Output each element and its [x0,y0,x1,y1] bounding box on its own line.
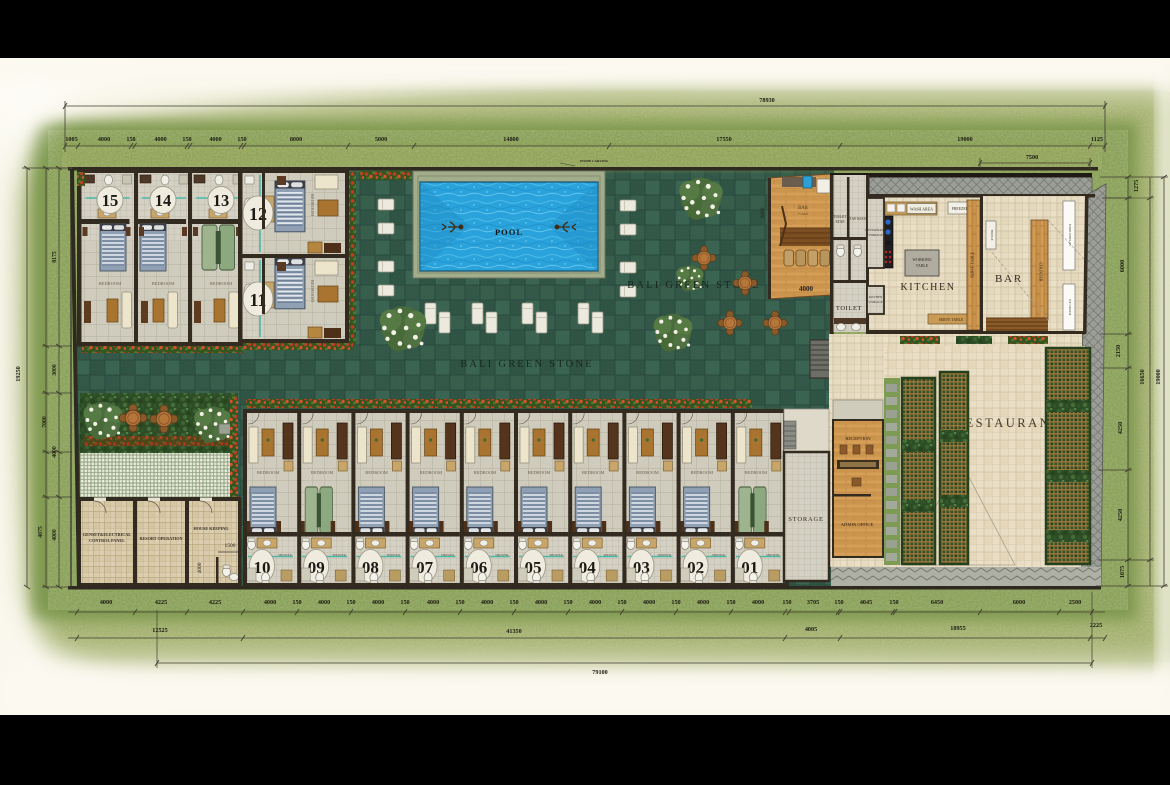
svg-text:1075: 1075 [1119,566,1126,578]
svg-text:GENSET&ELECTRICAL: GENSET&ELECTRICAL [83,532,131,537]
svg-text:12525: 12525 [152,627,167,634]
svg-text:COUNTER: COUNTER [1039,263,1044,282]
svg-text:8175: 8175 [52,251,58,263]
svg-text:4000: 4000 [697,599,709,606]
svg-text:SHOWER: SHOWER [549,553,563,557]
svg-text:4225: 4225 [155,599,167,606]
svg-text:1275: 1275 [1133,180,1140,192]
svg-text:4000: 4000 [799,285,814,293]
svg-text:4000: 4000 [643,599,655,606]
svg-text:BAR: BAR [798,206,809,211]
svg-text:SHOWER: SHOWER [603,553,617,557]
svg-text:6000: 6000 [1119,260,1126,272]
svg-text:4000: 4000 [318,599,330,606]
svg-text:4000: 4000 [154,136,166,143]
svg-text:150: 150 [782,599,791,606]
svg-text:4000: 4000 [427,599,439,606]
svg-text:150: 150 [455,599,464,606]
svg-text:TOILET: TOILET [833,215,847,219]
svg-text:BEDROOM: BEDROOM [745,470,768,475]
svg-text:KITCHEN: KITCHEN [869,295,883,299]
svg-text:RESORT OPERATION: RESORT OPERATION [139,536,182,541]
svg-text:4250: 4250 [1117,509,1124,521]
svg-text:14: 14 [155,191,172,210]
svg-text:WORKING: WORKING [912,257,931,262]
svg-text:4000: 4000 [372,599,384,606]
svg-text:150: 150 [182,136,191,143]
svg-text:TOILET: TOILET [836,305,862,312]
svg-text:CONTROL PANEL: CONTROL PANEL [89,538,125,543]
svg-text:4000: 4000 [535,599,547,606]
svg-text:1005: 1005 [65,136,77,143]
svg-text:BEDROOM: BEDROOM [636,470,659,475]
svg-text:STONE CARVING: STONE CARVING [580,159,609,163]
svg-text:150: 150 [237,136,246,143]
svg-text:4000: 4000 [752,599,764,606]
svg-text:STORAGE: STORAGE [868,300,882,304]
svg-text:150: 150 [400,599,409,606]
svg-text:4000: 4000 [481,599,493,606]
svg-text:150: 150 [617,599,626,606]
svg-text:WASH AREA: WASH AREA [910,207,933,212]
svg-text:3705: 3705 [807,599,819,606]
svg-text:+/-0.00: +/-0.00 [798,212,808,216]
svg-text:4000: 4000 [100,599,112,606]
svg-text:ADMIN OFFICE: ADMIN OFFICE [841,522,874,527]
svg-text:SHOWER: SHOWER [658,553,672,557]
svg-text:FREEZER: FREEZER [952,207,969,211]
svg-text:13: 13 [213,191,230,210]
svg-text:8000: 8000 [290,136,302,143]
svg-text:16650: 16650 [1139,369,1146,384]
svg-text:150: 150 [889,599,898,606]
svg-text:TABLE: TABLE [916,263,929,268]
svg-text:BEDROOM: BEDROOM [99,281,122,286]
svg-text:POOL: POOL [495,227,523,237]
svg-text:KITCHEN: KITCHEN [900,282,955,293]
svg-text:BAR: BAR [995,273,1023,285]
svg-text:SHOWER: SHOWER [712,553,726,557]
svg-text:BEDROOM: BEDROOM [690,470,713,475]
svg-text:BEDROOM: BEDROOM [365,470,388,475]
svg-text:150: 150 [126,136,135,143]
svg-text:4000: 4000 [589,599,601,606]
svg-text:5000: 5000 [375,136,387,143]
svg-text:6000: 6000 [1013,599,1025,606]
svg-text:7000: 7000 [42,416,48,428]
svg-text:19000: 19000 [957,136,972,143]
svg-text:SHOWER: SHOWER [495,553,509,557]
svg-text:14800: 14800 [503,136,518,143]
svg-text:BEDROOM: BEDROOM [310,194,315,217]
svg-text:2500: 2500 [1069,599,1081,606]
svg-text:4000: 4000 [264,599,276,606]
svg-text:18955: 18955 [950,625,965,632]
svg-text:BEDROOM: BEDROOM [474,470,497,475]
svg-text:RESTAURANT: RESTAURANT [865,228,885,232]
svg-text:150: 150 [726,599,735,606]
svg-text:3000: 3000 [52,364,58,376]
svg-text:2150: 2150 [1115,345,1122,357]
svg-text:STAF ROOM: STAF ROOM [847,217,869,221]
svg-text:4075: 4075 [38,526,44,538]
svg-text:6450: 6450 [931,599,943,606]
svg-text:SERVE TABLE: SERVE TABLE [939,318,964,322]
svg-text:BEDROOM: BEDROOM [528,470,551,475]
svg-text:15: 15 [102,191,119,210]
svg-text:SHOWER: SHOWER [278,553,292,557]
svg-text:4000: 4000 [52,529,58,541]
svg-text:RECEPTION: RECEPTION [845,436,871,441]
svg-text:150: 150 [346,599,355,606]
svg-text:7500: 7500 [1026,154,1038,161]
svg-text:1125: 1125 [1091,136,1103,143]
svg-text:BEDROOM: BEDROOM [310,280,315,303]
svg-text:SHOWER: SHOWER [441,553,455,557]
svg-text:BEDROOM: BEDROOM [257,470,280,475]
svg-text:BALI GREEN STONE: BALI GREEN STONE [460,359,594,370]
svg-text:HOUSE KEEPING: HOUSE KEEPING [193,526,229,531]
svg-text:150: 150 [834,599,843,606]
svg-text:79100: 79100 [592,669,607,676]
svg-text:BEDROOM: BEDROOM [152,281,175,286]
svg-text:STORAGE: STORAGE [868,233,882,237]
svg-text:41350: 41350 [506,628,521,635]
svg-text:4005: 4005 [805,626,817,633]
svg-text:4045: 4045 [860,599,872,606]
svg-text:SERVE TABLE: SERVE TABLE [970,252,975,278]
svg-text:4000: 4000 [209,136,221,143]
svg-text:3000: 3000 [760,207,766,218]
svg-text:150: 150 [563,599,572,606]
svg-text:4000: 4000 [98,136,110,143]
svg-text:4000: 4000 [52,446,58,458]
svg-text:BEDROOM: BEDROOM [419,470,442,475]
svg-text:19000: 19000 [1155,369,1162,384]
svg-text:BEDROOM: BEDROOM [582,470,605,475]
svg-text:SHOWER: SHOWER [387,553,401,557]
svg-text:150: 150 [671,599,680,606]
svg-text:4250: 4250 [1117,422,1124,434]
svg-text:4000: 4000 [197,562,203,573]
svg-text:19250: 19250 [15,366,22,381]
svg-text:STORAGE: STORAGE [788,516,823,523]
svg-text:ICE CREAM: ICE CREAM [1068,299,1072,316]
svg-text:BEDROOM: BEDROOM [210,281,233,286]
svg-text:17550: 17550 [716,136,731,143]
svg-text:FRIDGE: FRIDGE [990,230,994,241]
svg-text:1500: 1500 [225,543,236,549]
svg-text:4225: 4225 [209,599,221,606]
svg-text:SHOWER: SHOWER [332,553,346,557]
svg-text:150: 150 [509,599,518,606]
svg-text:150: 150 [292,599,301,606]
svg-text:STAF: STAF [836,220,845,224]
svg-text:BEDROOM: BEDROOM [311,470,334,475]
svg-text:SHOWER: SHOWER [766,553,780,557]
svg-text:78930: 78930 [759,97,774,104]
